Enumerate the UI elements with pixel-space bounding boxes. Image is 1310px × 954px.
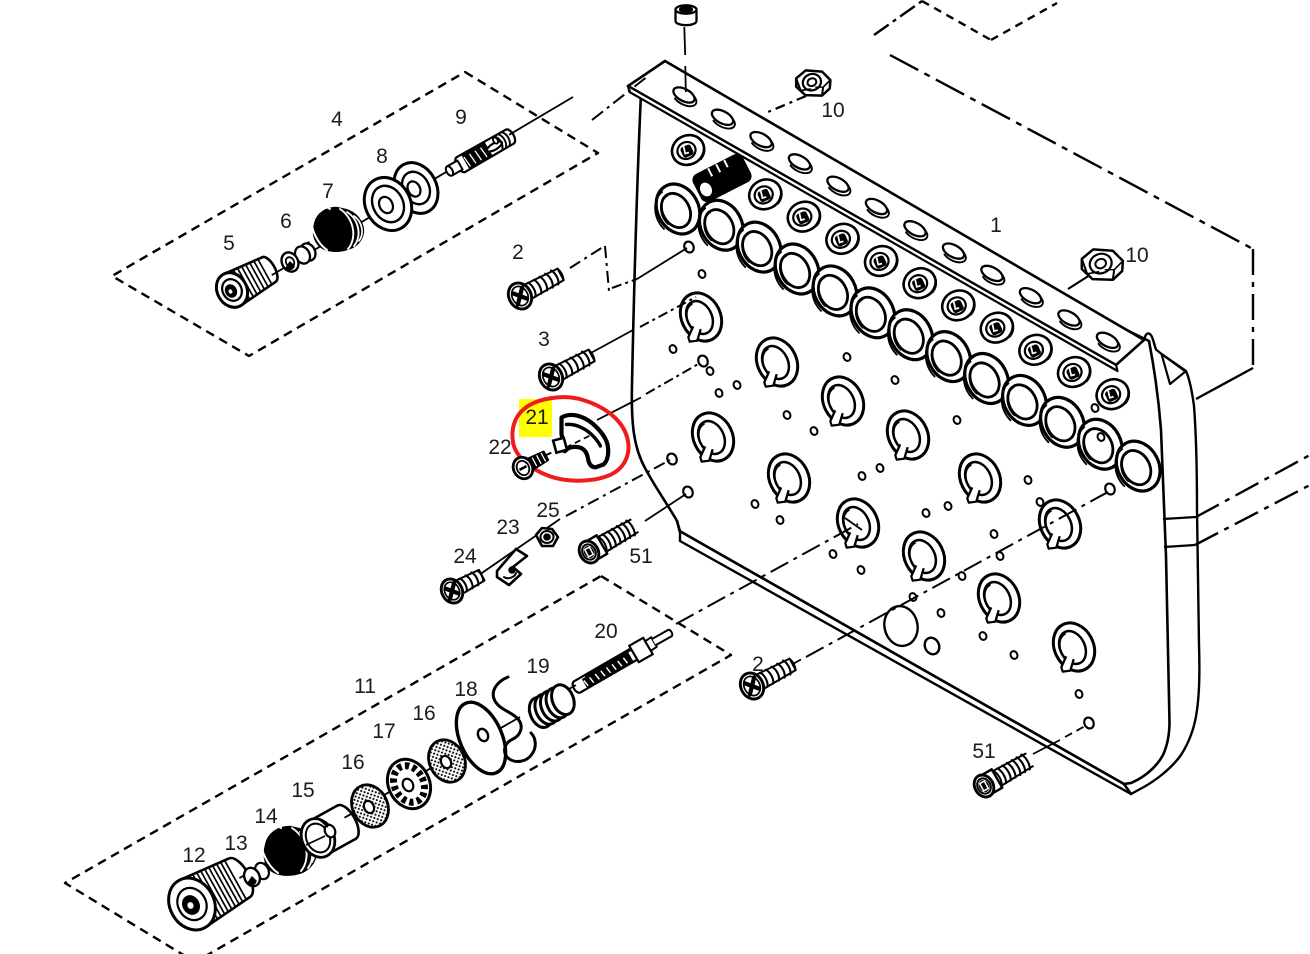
- svg-text:16: 16: [341, 751, 364, 774]
- svg-text:20: 20: [594, 620, 617, 643]
- svg-text:2: 2: [752, 653, 764, 676]
- svg-text:16: 16: [412, 702, 435, 725]
- svg-text:18: 18: [454, 678, 477, 701]
- svg-text:3: 3: [538, 328, 550, 351]
- svg-text:51: 51: [629, 545, 652, 568]
- svg-text:6: 6: [280, 210, 292, 233]
- svg-text:7: 7: [322, 180, 334, 203]
- svg-text:10: 10: [821, 99, 844, 122]
- svg-text:17: 17: [372, 720, 395, 743]
- svg-text:25: 25: [536, 499, 559, 522]
- svg-text:5: 5: [223, 232, 235, 255]
- svg-text:13: 13: [224, 832, 247, 855]
- svg-text:8: 8: [376, 145, 388, 168]
- svg-text:19: 19: [526, 655, 549, 678]
- svg-text:1: 1: [990, 214, 1002, 237]
- svg-text:21: 21: [525, 406, 548, 429]
- svg-text:24: 24: [453, 545, 477, 568]
- svg-text:4: 4: [331, 108, 343, 131]
- svg-text:12: 12: [182, 844, 205, 867]
- svg-text:22: 22: [488, 436, 511, 459]
- svg-text:23: 23: [496, 516, 519, 539]
- svg-text:51: 51: [972, 740, 995, 763]
- svg-text:9: 9: [455, 106, 467, 129]
- svg-text:14: 14: [254, 805, 278, 828]
- svg-text:2: 2: [512, 241, 524, 264]
- svg-text:15: 15: [291, 779, 314, 802]
- svg-text:10: 10: [1125, 244, 1148, 267]
- svg-text:11: 11: [354, 675, 376, 698]
